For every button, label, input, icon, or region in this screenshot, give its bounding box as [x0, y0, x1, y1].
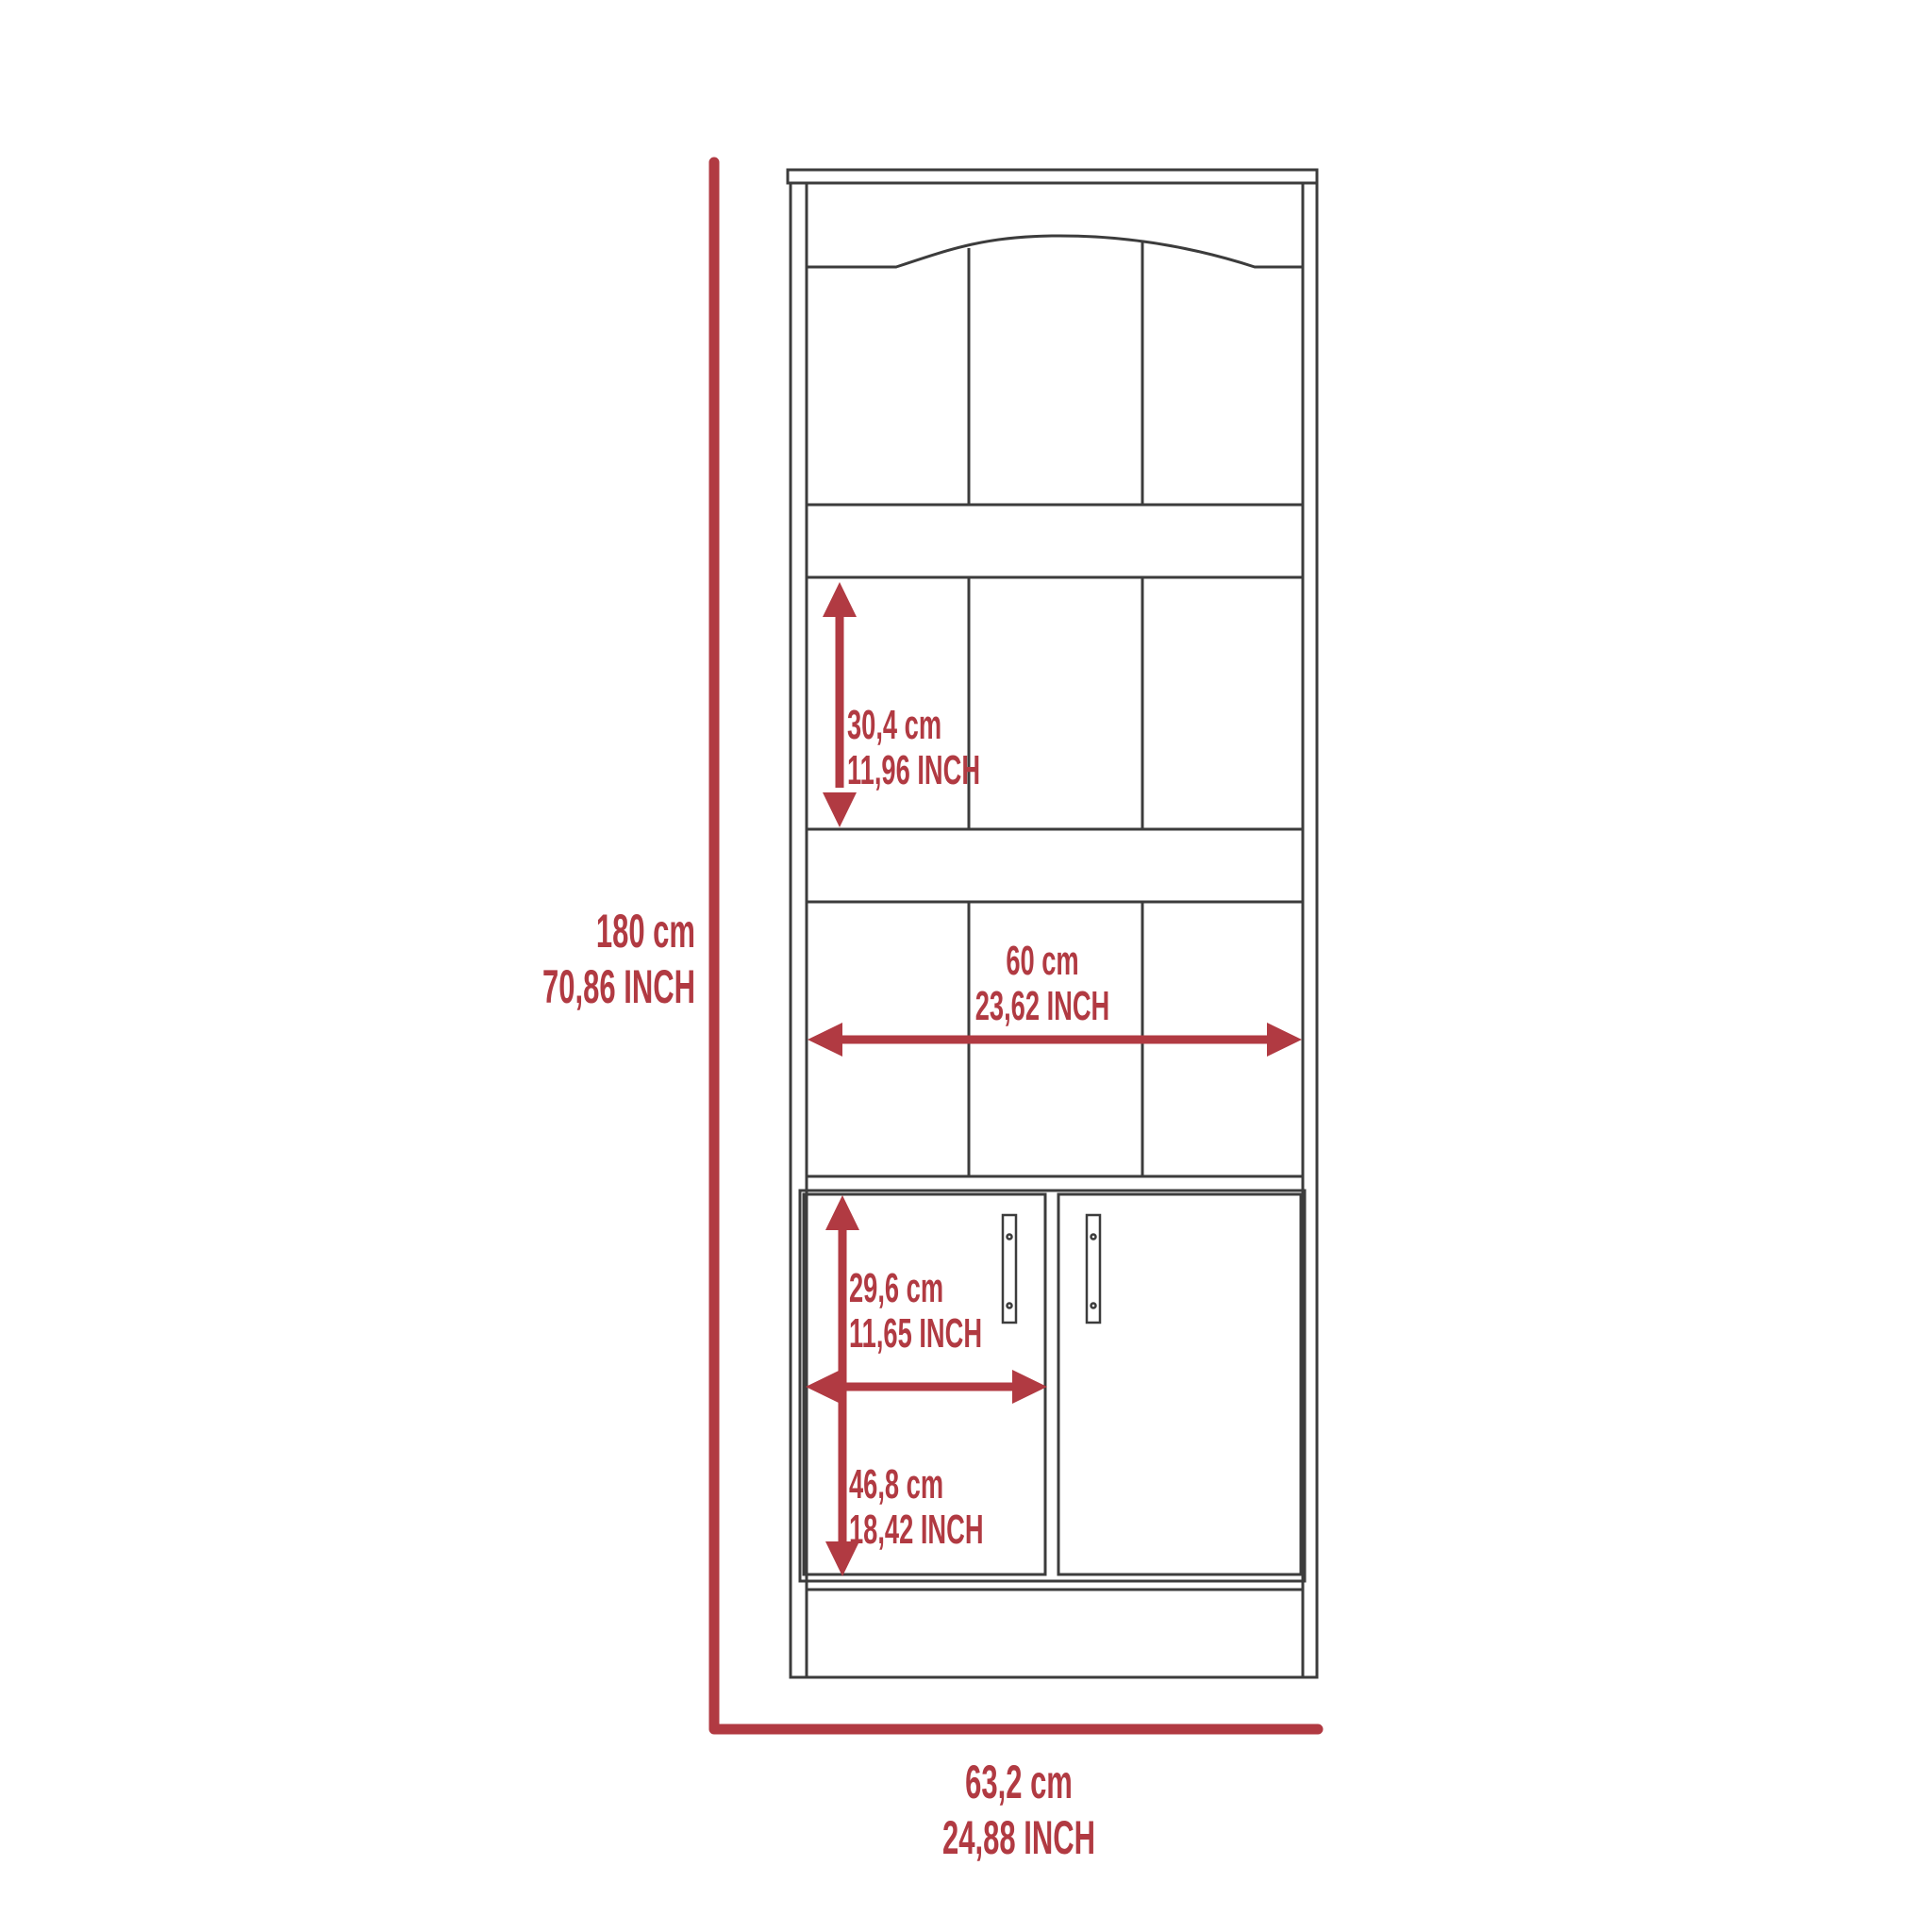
door-width-metric: 29,6 cm	[849, 1266, 982, 1311]
valance-arch	[807, 236, 1303, 267]
handle-screw-icon	[1091, 1235, 1096, 1240]
shelf-height-metric: 30,4 cm	[847, 703, 980, 748]
left-door-handle	[1003, 1215, 1016, 1323]
door-handles	[1003, 1215, 1100, 1323]
shelf-height-imperial: 11,96 INCH	[847, 748, 980, 793]
overall-width-imperial: 24,88 INCH	[902, 1810, 1136, 1866]
handle-screw-icon	[1008, 1235, 1012, 1240]
door-width-imperial: 11,65 INCH	[849, 1311, 982, 1357]
cabinet-body	[791, 183, 1317, 1677]
cabinet-outline	[788, 170, 1317, 1677]
handle-screw-icon	[1008, 1304, 1012, 1308]
interior-width-imperial: 23,62 INCH	[955, 984, 1130, 1029]
interior-width-metric: 60 cm	[955, 939, 1130, 984]
shelf-height-label: 30,4 cm 11,96 INCH	[847, 703, 980, 792]
interior-width-label: 60 cm 23,62 INCH	[955, 939, 1130, 1028]
overall-width-metric: 63,2 cm	[902, 1755, 1136, 1810]
door-height-metric: 46,8 cm	[849, 1462, 984, 1507]
overall-width-label: 63,2 cm 24,88 INCH	[902, 1755, 1136, 1866]
door-height-label: 46,8 cm 18,42 INCH	[849, 1462, 984, 1552]
right-door-handle	[1087, 1215, 1100, 1323]
overall-height-imperial: 70,86 INCH	[502, 959, 695, 1015]
door-width-label: 29,6 cm 11,65 INCH	[849, 1266, 982, 1356]
dimension-diagram: 180 cm 70,86 INCH 63,2 cm 24,88 INCH 30,…	[0, 0, 1932, 1932]
door-height-imperial: 18,42 INCH	[849, 1507, 984, 1553]
right-door	[1058, 1194, 1301, 1574]
cabinet-top-board	[788, 170, 1317, 183]
overall-height-metric: 180 cm	[502, 904, 695, 959]
overall-height-label: 180 cm 70,86 INCH	[502, 904, 695, 1015]
handle-screw-icon	[1091, 1304, 1096, 1308]
